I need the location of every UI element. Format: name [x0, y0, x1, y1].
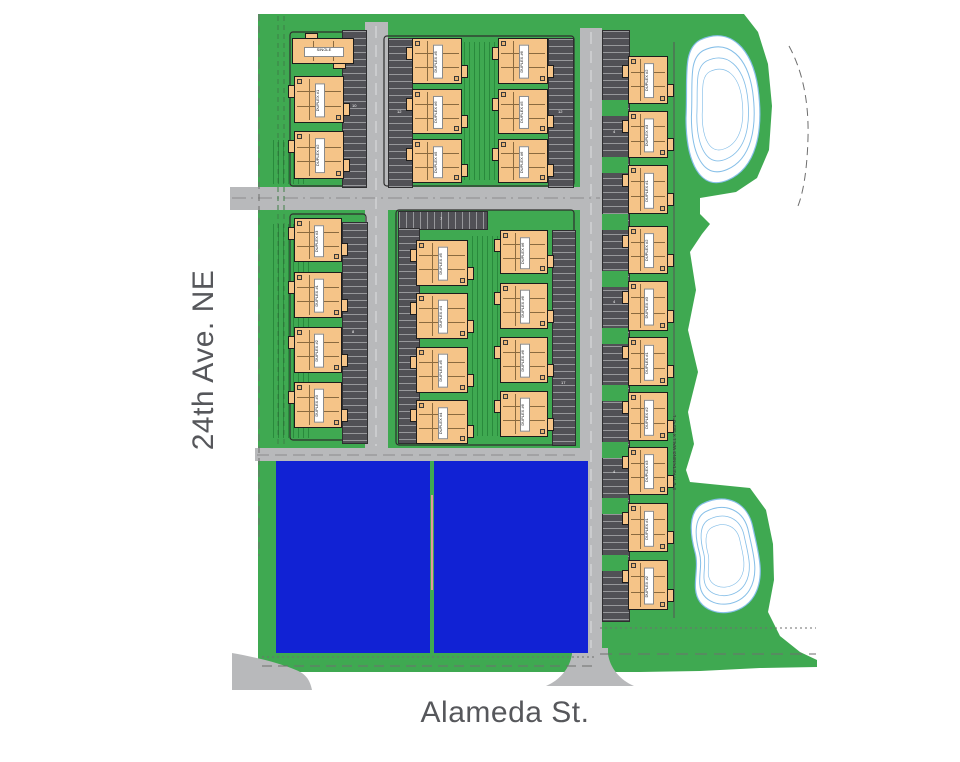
interior-wall — [640, 284, 641, 328]
interior-wall — [640, 506, 641, 549]
building-label: DUPLEX #5 — [438, 354, 448, 388]
patio-detail — [503, 340, 508, 345]
street-label-24th-ave: 24th Ave. NE — [187, 250, 227, 470]
building-label: DUPLEX #6 — [520, 290, 530, 324]
parking-green-break — [602, 271, 628, 287]
garage-wing — [547, 255, 554, 268]
patio-detail — [415, 41, 420, 46]
patio-detail — [660, 323, 665, 328]
building-duplex-3: DUPLEX #3 — [628, 111, 668, 158]
garage-wing — [410, 409, 417, 422]
patio-detail — [631, 59, 636, 64]
patio-detail — [631, 506, 636, 511]
building-duplex-6: DUPLEX #6 — [500, 230, 548, 274]
patio-detail — [454, 175, 459, 180]
building-label: DUPLEX #3 — [644, 289, 654, 326]
patio-detail — [419, 350, 424, 355]
garage-wing — [343, 103, 350, 116]
patio-detail — [540, 76, 545, 81]
garage-wing — [494, 292, 501, 305]
street-label-alameda: Alameda St. — [395, 696, 615, 736]
patio-detail — [631, 450, 636, 455]
patio-detail — [660, 544, 665, 549]
building-duplex-1: DUPLEX #1 — [628, 503, 668, 552]
garage-wing — [461, 115, 468, 128]
garage-wing — [667, 531, 674, 544]
garage-wing — [622, 570, 629, 583]
building-duplex-1: DUPLEX #1 — [294, 76, 344, 123]
building-duplex-5: DUPLEX #5 — [416, 347, 468, 393]
garage-wing — [622, 235, 629, 248]
interior-wall — [640, 59, 641, 101]
building-label: DUPLEX #6 — [433, 96, 443, 129]
parking-green-break — [602, 328, 628, 344]
patio-detail — [540, 266, 545, 271]
patio-detail — [334, 420, 339, 425]
parking-stall-count: 4 — [613, 300, 615, 304]
patio-detail — [419, 296, 424, 301]
garage-wing — [333, 63, 346, 69]
garage-wing — [467, 267, 474, 280]
parking-green-break — [602, 100, 628, 116]
patio-detail — [460, 436, 465, 441]
garage-wing — [547, 164, 554, 177]
future-phase-lot — [434, 461, 588, 653]
building-duplex-6: DUPLEX #6 — [500, 391, 548, 437]
garage-wing — [410, 302, 417, 315]
patio-detail — [460, 331, 465, 336]
parking-strip — [602, 30, 630, 622]
patio-detail — [297, 79, 302, 84]
building-duplex-4: DUPLEX #4 — [416, 293, 468, 339]
garage-wing — [667, 193, 674, 206]
parking-stall-count: 7 — [440, 217, 442, 221]
garage-wing — [492, 98, 499, 111]
patio-detail — [540, 375, 545, 380]
garage-wing — [667, 138, 674, 151]
garage-wing — [547, 364, 554, 377]
garage-wing — [343, 159, 350, 172]
garage-wing — [461, 65, 468, 78]
building-duplex-2: DUPLEX #2 — [628, 226, 668, 274]
patio-detail — [297, 134, 302, 139]
building-label: DUPLEX #1 — [644, 173, 654, 209]
patio-detail — [460, 278, 465, 283]
garage-wing — [494, 346, 501, 359]
patio-detail — [454, 76, 459, 81]
building-duplex-2: DUPLEX #2 — [294, 327, 342, 373]
building-label: DUPLEX #2 — [315, 138, 325, 173]
parking-stall-count: 10 — [352, 104, 356, 108]
building-duplex-5: DUPLEX #5 — [412, 139, 462, 183]
interior-wall — [640, 229, 641, 271]
patio-detail — [336, 115, 341, 120]
building-label: DUPLEX #3 — [314, 225, 324, 257]
garage-wing — [341, 354, 348, 367]
interior-wall — [309, 134, 310, 176]
patio-detail — [631, 168, 636, 173]
garage-wing — [494, 239, 501, 252]
patio-detail — [660, 378, 665, 383]
parking-stall-count: 12 — [558, 110, 562, 114]
patio-detail — [660, 487, 665, 492]
building-label: DUPLEX #2 — [644, 400, 654, 436]
interior-wall — [432, 296, 433, 336]
building-label: DUPLEX #5 — [433, 45, 443, 79]
patio-detail — [501, 92, 506, 97]
patio-detail — [660, 602, 665, 607]
parking-green-break — [602, 385, 628, 401]
interior-wall — [515, 286, 516, 326]
patio-detail — [540, 126, 545, 131]
building-duplex-3: DUPLEX #3 — [294, 382, 342, 428]
building-label: DUPLEX #1 — [315, 83, 325, 117]
interior-wall — [515, 233, 516, 271]
building-label: DUPLEX #4 — [438, 407, 448, 439]
building-duplex-6: DUPLEX #6 — [500, 337, 548, 383]
garage-wing — [305, 33, 318, 39]
garage-wing — [622, 291, 629, 304]
garage-wing — [667, 254, 674, 267]
building-duplex-2: DUPLEX #2 — [294, 131, 344, 179]
parking-green-break — [602, 157, 628, 173]
patio-detail — [334, 365, 339, 370]
patio-detail — [503, 286, 508, 291]
patio-detail — [297, 385, 302, 390]
building-label: DUPLEX #6 — [520, 344, 530, 378]
parking-stall-count: 4 — [613, 130, 615, 134]
garage-wing — [406, 148, 413, 161]
building-label: DUPLEX #3 — [314, 389, 324, 423]
patio-detail — [454, 126, 459, 131]
interior-wall — [513, 142, 514, 180]
lot-divider-line — [431, 495, 433, 590]
garage-wing — [547, 418, 554, 431]
building-duplex-3: DUPLEX #3 — [628, 447, 668, 495]
building-label: DUPLEX #2 — [644, 233, 654, 268]
garage-wing — [288, 281, 295, 294]
garage-wing — [547, 310, 554, 323]
building-duplex-4: DUPLEX #4 — [416, 400, 468, 444]
pond-north — [686, 36, 760, 183]
garage-wing — [622, 456, 629, 469]
interior-wall — [513, 92, 514, 131]
building-duplex-5: DUPLEX #5 — [412, 38, 462, 84]
patio-detail — [334, 254, 339, 259]
patio-detail — [334, 310, 339, 315]
building-label: DUPLEX #3 — [644, 118, 654, 152]
garage-wing — [622, 512, 629, 525]
interior-wall — [640, 563, 641, 607]
building-label: DUPLEX #6 — [520, 398, 530, 432]
building-duplex-6: DUPLEX #6 — [498, 38, 548, 84]
interior-wall — [640, 450, 641, 492]
patio-detail — [660, 96, 665, 101]
patio-detail — [419, 243, 424, 248]
garage-wing — [622, 120, 629, 133]
interior-wall — [309, 330, 310, 370]
patio-detail — [419, 403, 424, 408]
building-label: DUPLEX #5 — [433, 146, 443, 178]
building-label: DUPLEX #6 — [519, 146, 529, 178]
building-label: DUPLEX #1 — [644, 511, 654, 547]
patio-detail — [540, 321, 545, 326]
patio-detail — [660, 433, 665, 438]
parking-green-break — [602, 555, 628, 571]
garage-wing — [467, 374, 474, 387]
patio-detail — [503, 394, 508, 399]
building-label: DUPLEX #2 — [314, 334, 324, 368]
parking-stall-count: 8 — [352, 330, 354, 334]
garage-wing — [341, 299, 348, 312]
interior-wall — [432, 350, 433, 390]
patio-detail — [297, 275, 302, 280]
garage-wing — [622, 346, 629, 359]
patio-detail — [297, 330, 302, 335]
building-label: SINGLE — [304, 47, 344, 57]
site-plan: 24th Ave. NE Alameda St. 5'-0" H RETAINI… — [0, 0, 960, 762]
building-duplex-2: DUPLEX #2 — [628, 56, 668, 104]
building-label: DUPLEX #5 — [438, 247, 448, 281]
interior-wall — [640, 114, 641, 155]
building-label: DUPLEX #6 — [519, 45, 529, 79]
patio-detail — [540, 429, 545, 434]
interior-wall — [432, 403, 433, 441]
garage-wing — [667, 589, 674, 602]
building-duplex-6: DUPLEX #6 — [412, 89, 462, 134]
building-label: DUPLEX #4 — [438, 300, 448, 334]
building-label: DUPLEX #1 — [644, 345, 654, 381]
parking-stall-count: 17 — [561, 381, 565, 385]
interior-wall — [427, 142, 428, 180]
garage-wing — [288, 140, 295, 153]
patio-detail — [631, 114, 636, 119]
patio-detail — [336, 171, 341, 176]
garage-wing — [406, 47, 413, 60]
garage-wing — [467, 425, 474, 438]
patio-detail — [660, 150, 665, 155]
garage-wing — [494, 400, 501, 413]
interior-wall — [427, 92, 428, 131]
building-duplex-2: DUPLEX #2 — [628, 392, 668, 441]
patio-detail — [501, 41, 506, 46]
building-duplex-3: DUPLEX #3 — [628, 281, 668, 331]
garage-wing — [547, 65, 554, 78]
patio-detail — [415, 92, 420, 97]
garage-wing — [667, 84, 674, 97]
building-duplex-3: DUPLEX #3 — [294, 218, 342, 262]
building-label: DUPLEX #6 — [520, 237, 530, 269]
garage-wing — [467, 320, 474, 333]
building-duplex-6: DUPLEX #6 — [500, 283, 548, 329]
interior-wall — [309, 275, 310, 315]
garage-wing — [410, 356, 417, 369]
garage-wing — [341, 409, 348, 422]
building-duplex-1: DUPLEX #1 — [628, 165, 668, 214]
building-duplex-5: DUPLEX #5 — [416, 240, 468, 286]
interior-wall — [640, 395, 641, 438]
interior-wall — [427, 41, 428, 81]
garage-wing — [461, 164, 468, 177]
garage-wing — [667, 310, 674, 323]
building-duplex-1: DUPLEX #1 — [294, 272, 342, 318]
patio-detail — [631, 229, 636, 234]
building-duplex-5: DUPLEX #5 — [498, 89, 548, 134]
patio-detail — [460, 385, 465, 390]
interior-wall — [309, 385, 310, 425]
patio-detail — [631, 563, 636, 568]
patio-detail — [415, 142, 420, 147]
building-duplex-1: DUPLEX #1 — [628, 337, 668, 386]
future-phase-lot — [276, 461, 430, 653]
interior-wall — [513, 41, 514, 81]
interior-wall — [515, 394, 516, 434]
retaining-wall-note: 5'-0" H RETAINING WALL X 383'-0" L — [673, 370, 679, 490]
patio-detail — [660, 206, 665, 211]
interior-wall — [515, 340, 516, 380]
garage-wing — [622, 174, 629, 187]
building-label: DUPLEX #2 — [644, 63, 654, 98]
patio-detail — [503, 233, 508, 238]
patio-detail — [297, 221, 302, 226]
garage-wing — [288, 391, 295, 404]
garage-wing — [622, 65, 629, 78]
garage-wing — [492, 148, 499, 161]
patio-detail — [501, 142, 506, 147]
parking-stall-count: 12 — [397, 110, 401, 114]
garage-wing — [341, 243, 348, 256]
parking-green-break — [602, 214, 628, 230]
parking-strip — [552, 230, 576, 446]
interior-wall — [432, 243, 433, 283]
parking-stall-count: 4 — [613, 470, 615, 474]
interior-wall — [309, 79, 310, 120]
garage-wing — [288, 85, 295, 98]
garage-wing — [622, 401, 629, 414]
building-label: DUPLEX #5 — [519, 96, 529, 129]
building-label: DUPLEX #3 — [644, 454, 654, 489]
building-label: DUPLEX #2 — [644, 568, 654, 605]
garage-wing — [410, 249, 417, 262]
patio-detail — [631, 395, 636, 400]
patio-detail — [631, 340, 636, 345]
interior-wall — [640, 168, 641, 211]
garage-wing — [547, 115, 554, 128]
interior-wall — [640, 340, 641, 383]
interior-wall — [309, 221, 310, 259]
patio-detail — [660, 266, 665, 271]
garage-wing — [406, 98, 413, 111]
building-single: SINGLE — [292, 38, 354, 64]
building-duplex-6: DUPLEX #6 — [498, 139, 548, 183]
patio-detail — [540, 175, 545, 180]
garage-wing — [288, 336, 295, 349]
patio-detail — [631, 284, 636, 289]
garage-wing — [492, 47, 499, 60]
building-duplex-2: DUPLEX #2 — [628, 560, 668, 610]
garage-wing — [288, 227, 295, 240]
building-label: DUPLEX #1 — [314, 279, 324, 313]
